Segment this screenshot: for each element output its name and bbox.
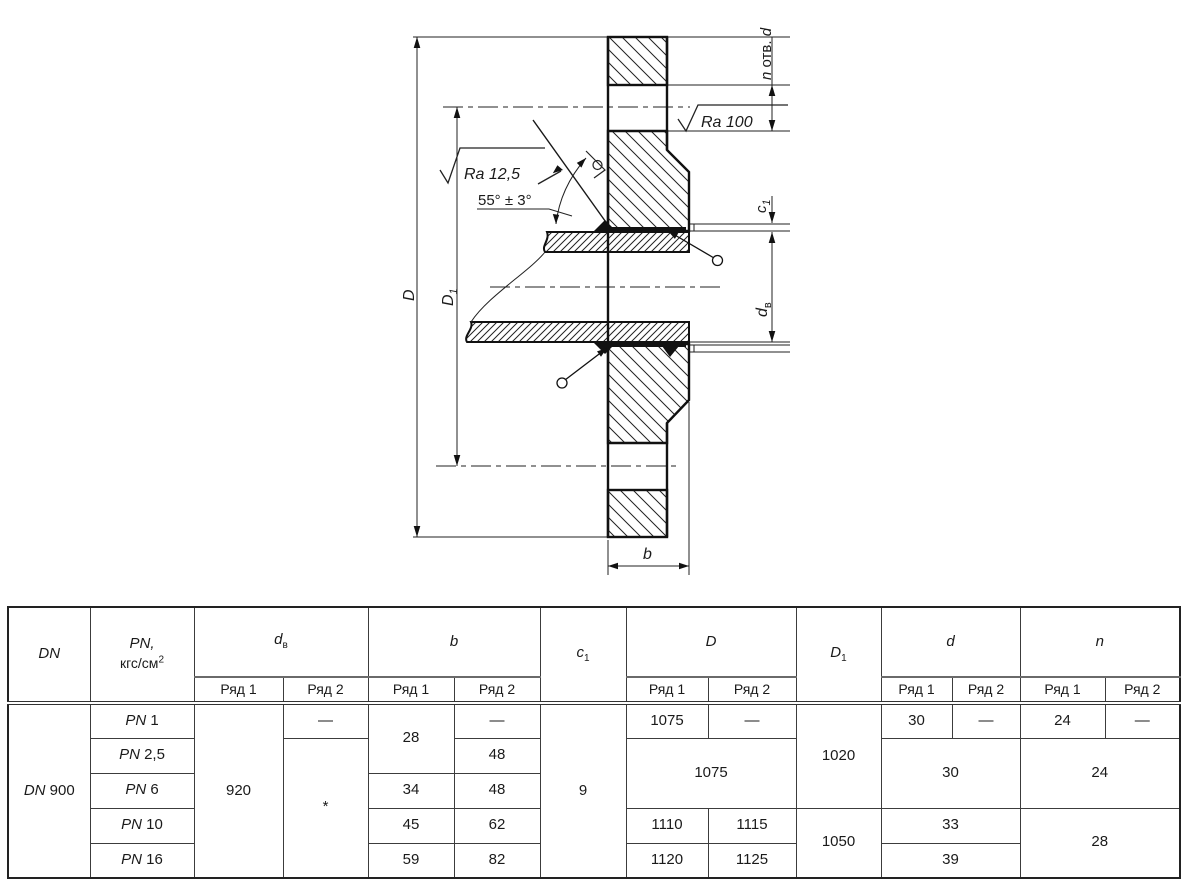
label-dim-c1: c1 <box>753 199 773 213</box>
label-ra100: Ra 100 <box>701 114 753 131</box>
col-header-pn: PN, кгс/см2 <box>90 607 194 703</box>
subheader-D-ryad1: Ряд 1 <box>626 677 708 703</box>
cell-d-merged: 33 <box>881 808 1020 843</box>
subheader-d-ryad1: Ряд 1 <box>881 677 952 703</box>
cell-d-merged: 39 <box>881 843 1020 878</box>
cell-pn: PN 2,5 <box>90 738 194 773</box>
cell-b-ryad1: 34 <box>368 773 454 808</box>
col-header-dv: dв <box>194 607 368 677</box>
subheader-d-ryad2: Ряд 2 <box>952 677 1020 703</box>
col-header-d: d <box>881 607 1020 677</box>
subheader-b-ryad1: Ряд 1 <box>368 677 454 703</box>
flange-section-drawing: n отв. d Ra 100 Ra 12,5 55° ± 3° D D1 c1… <box>0 0 1185 600</box>
gost-flange-page: n отв. d Ra 100 Ra 12,5 55° ± 3° D D1 c1… <box>0 0 1185 883</box>
cell-pn: PN 6 <box>90 773 194 808</box>
cell-b-ryad1: 59 <box>368 843 454 878</box>
col-header-n: n <box>1020 607 1180 677</box>
cell-dv-ryad2: * <box>283 738 368 878</box>
cell-D-ryad1: 1075 <box>626 703 708 738</box>
cell-n-ryad1: 24 <box>1020 703 1105 738</box>
table-row-pn1: DN 900 PN 1 920 — 28 — 9 1075 — 1020 30 … <box>8 703 1180 738</box>
cell-D-ryad2: — <box>708 703 796 738</box>
cell-b-ryad1: 45 <box>368 808 454 843</box>
cell-b-ryad1: 28 <box>368 703 454 773</box>
cell-D-ryad2: 1125 <box>708 843 796 878</box>
cell-b-ryad2: 82 <box>454 843 540 878</box>
centerlines <box>436 107 725 466</box>
subheader-n-ryad1: Ряд 1 <box>1020 677 1105 703</box>
subheader-n-ryad2: Ряд 2 <box>1105 677 1180 703</box>
cell-D-ryad1: 1120 <box>626 843 708 878</box>
col-header-D1: D1 <box>796 607 881 703</box>
label-ra125: Ra 12,5 <box>464 166 520 183</box>
cell-D-merged: 1075 <box>626 738 796 808</box>
label-dim-D: D <box>401 289 418 301</box>
cell-n-ryad2: — <box>1105 703 1180 738</box>
subheader-dv-ryad1: Ряд 1 <box>194 677 283 703</box>
col-header-D: D <box>626 607 796 677</box>
label-weld-angle: 55° ± 3° <box>478 192 532 209</box>
label-dim-dv: dв <box>754 302 774 317</box>
col-header-c1: c1 <box>540 607 626 703</box>
cell-dv-ryad1: 920 <box>194 703 283 878</box>
cell-n-merged: 24 <box>1020 738 1180 808</box>
cell-b-ryad2: — <box>454 703 540 738</box>
label-dim-b: b <box>643 546 652 563</box>
cell-D-ryad1: 1110 <box>626 808 708 843</box>
cell-dv-ryad2: — <box>283 703 368 738</box>
cell-D1: 1050 <box>796 808 881 878</box>
label-n-holes-d: n отв. d <box>758 27 775 80</box>
subheader-D-ryad2: Ряд 2 <box>708 677 796 703</box>
cell-b-ryad2: 62 <box>454 808 540 843</box>
col-header-dn: DN <box>8 607 90 703</box>
cell-d-ryad1: 30 <box>881 703 952 738</box>
subheader-b-ryad2: Ряд 2 <box>454 677 540 703</box>
cell-pn: PN 1 <box>90 703 194 738</box>
cell-d-ryad2: — <box>952 703 1020 738</box>
col-header-b: b <box>368 607 540 677</box>
cell-pn: PN 10 <box>90 808 194 843</box>
cell-b-ryad2: 48 <box>454 773 540 808</box>
cell-d-merged: 30 <box>881 738 1020 808</box>
cell-D1: 1020 <box>796 703 881 808</box>
cell-c1: 9 <box>540 703 626 878</box>
no-machining-symbol <box>586 151 605 178</box>
cell-pn: PN 16 <box>90 843 194 878</box>
subheader-dv-ryad2: Ряд 2 <box>283 677 368 703</box>
cell-dn: DN 900 <box>8 703 90 878</box>
cell-D-ryad2: 1115 <box>708 808 796 843</box>
cell-b-ryad2: 48 <box>454 738 540 773</box>
flange-dimensions-table: DN PN, кгс/см2 dв b c1 D D1 d n Ряд 1 Ря… <box>7 606 1181 879</box>
cell-n-merged: 28 <box>1020 808 1180 878</box>
